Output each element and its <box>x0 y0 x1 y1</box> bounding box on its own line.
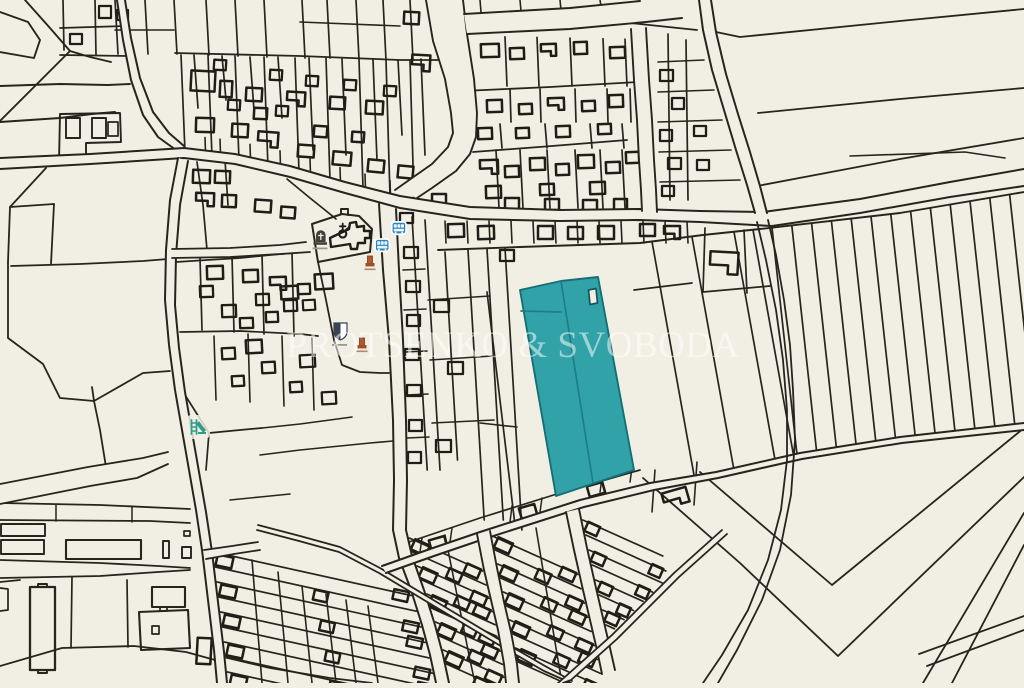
svg-text:PROTSENKO & SVOBODA: PROTSENKO & SVOBODA <box>286 325 740 366</box>
